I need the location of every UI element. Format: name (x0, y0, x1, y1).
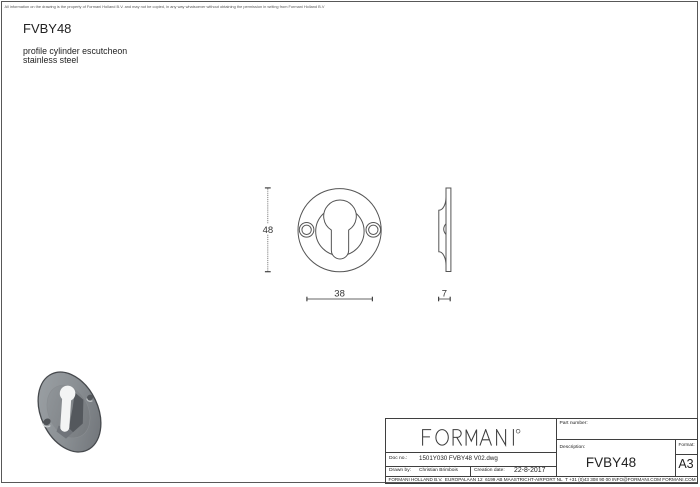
svg-text:48: 48 (263, 225, 274, 236)
svg-text:38: 38 (334, 289, 345, 300)
svg-text:7: 7 (442, 289, 447, 300)
